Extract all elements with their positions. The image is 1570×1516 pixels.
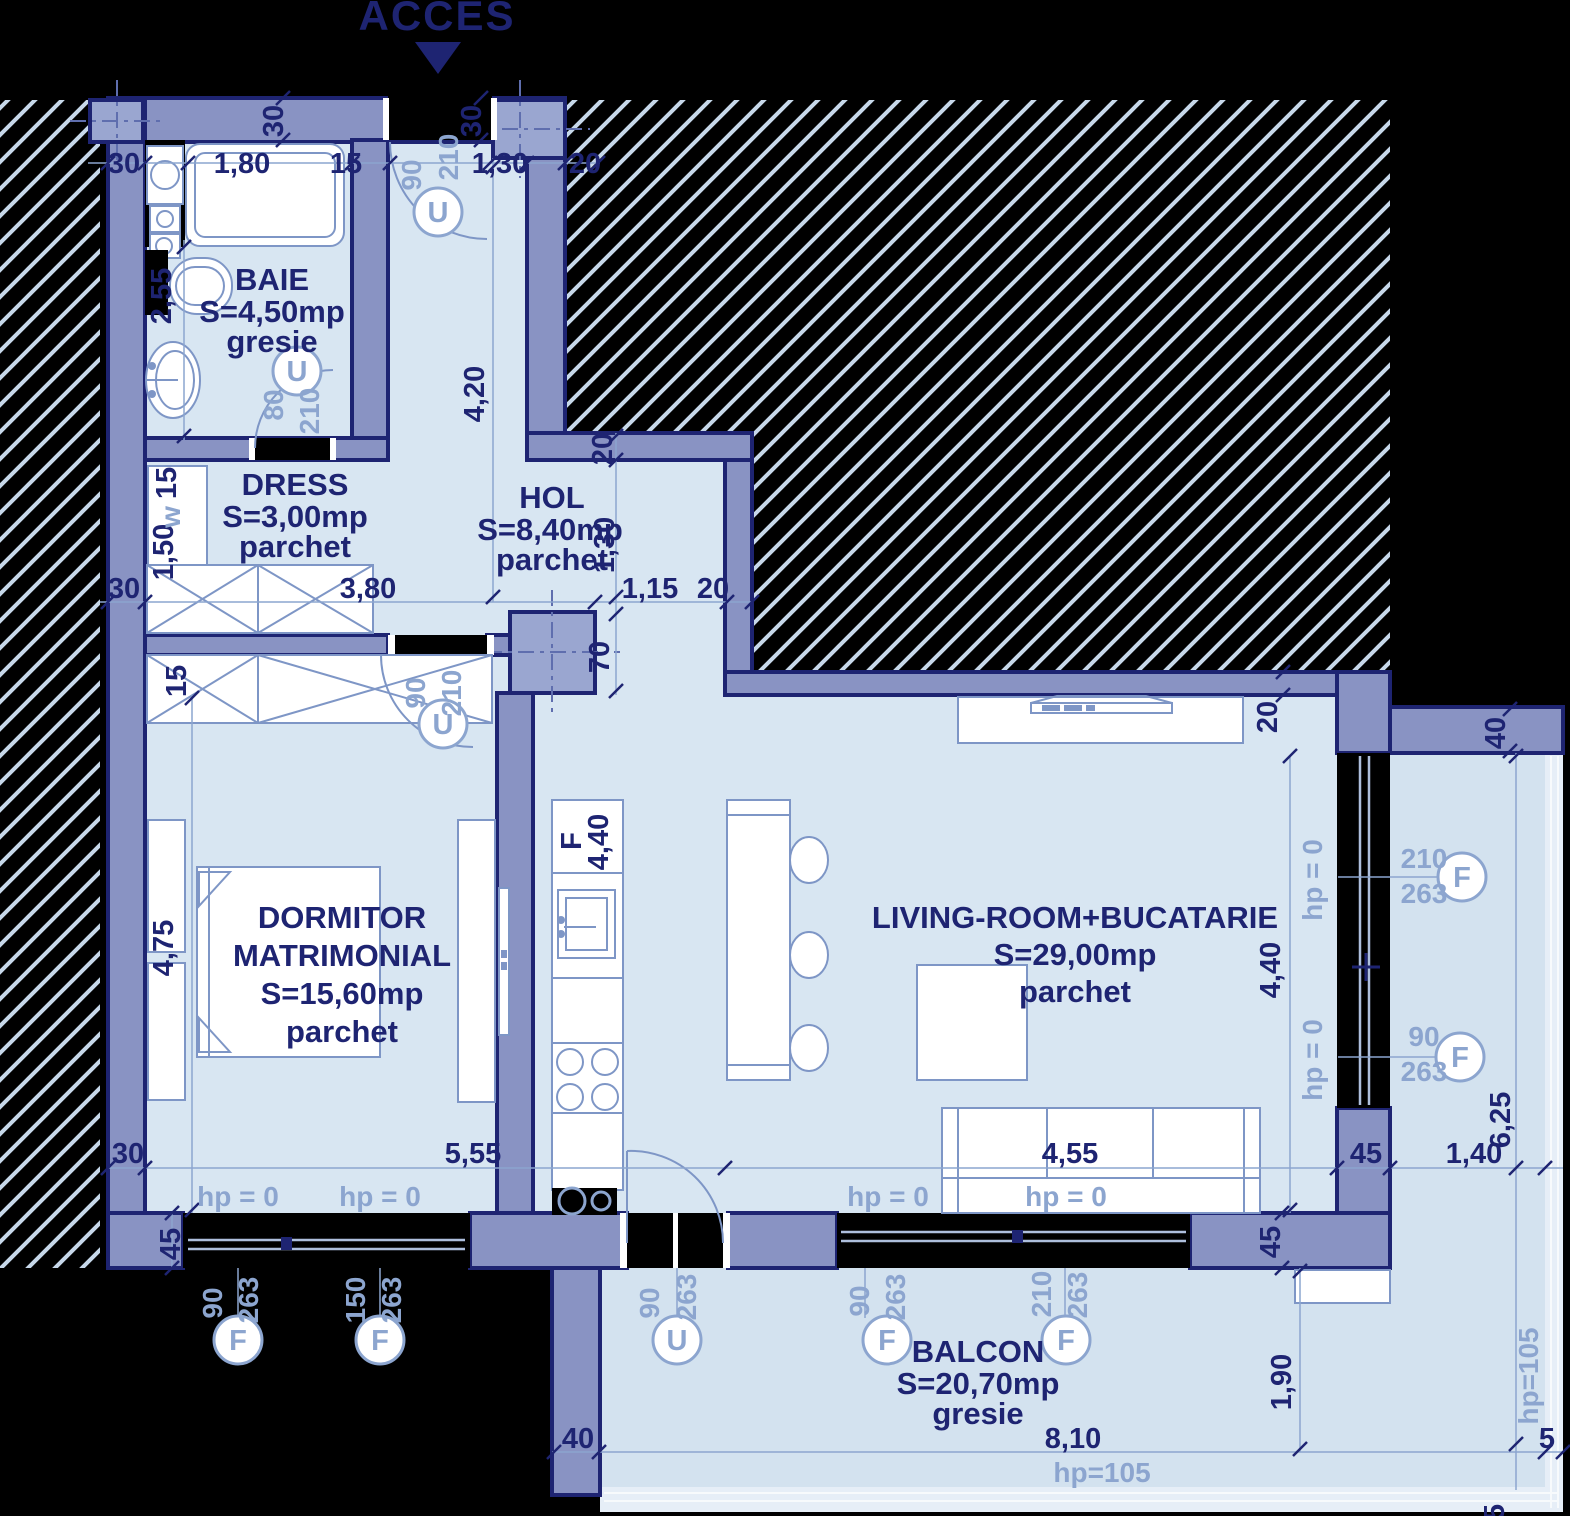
dim-label: 1,30 (472, 148, 528, 180)
parapet-label: hp = 0 (339, 1181, 421, 1212)
dim-label: 20 (569, 148, 601, 180)
door-size-label: 90 (400, 677, 431, 708)
window-size-label: 150 (340, 1277, 371, 1324)
door-size-label: 210 (433, 134, 464, 181)
door-size-label: 90 (396, 159, 427, 190)
door-size-label: 90 (634, 1287, 665, 1318)
wall-living-top (725, 672, 1337, 695)
dim-label: 1,90 (1266, 1354, 1298, 1410)
dim-label: 4,55 (1042, 1138, 1098, 1170)
dormitor-name-2: MATRIMONIAL (233, 938, 451, 973)
dim-label: 30 (112, 1138, 144, 1170)
window-symbol-letter: F (1057, 1325, 1075, 1357)
dress-name: DRESS (242, 467, 349, 502)
living-area: S=29,00mp (994, 937, 1157, 972)
window-symbol-letter: F (878, 1325, 896, 1357)
window-size-label: 263 (1062, 1272, 1093, 1319)
dim-label: 1,30 (589, 517, 621, 573)
wall-dress-dorm (145, 635, 388, 655)
dim-label: 1,15 (622, 573, 678, 605)
window-symbol-letter: F (1451, 1042, 1469, 1074)
washer-label: w (155, 506, 186, 529)
window-size-label: 263 (376, 1277, 407, 1324)
parapet-label: hp=105 (1513, 1327, 1544, 1424)
window-symbol-letter: F (229, 1325, 247, 1357)
window-size-label: 263 (880, 1274, 911, 1321)
baie-floor: gresie (226, 324, 317, 359)
dim-label: 40 (562, 1423, 594, 1455)
wall-bottom-pier-1 (470, 1213, 627, 1268)
opening-dorm-door (395, 635, 487, 655)
window-size-label: 90 (1408, 1021, 1439, 1052)
living-floor: parchet (1019, 974, 1131, 1009)
stool (790, 837, 828, 883)
wall-balcony-left (552, 1268, 600, 1495)
window-size-label: 263 (1401, 878, 1448, 909)
dim-label: 15 (330, 148, 362, 180)
access-title: ACCES (358, 0, 515, 39)
wall-bottom-pier-2 (728, 1213, 837, 1268)
dim-label: 8,10 (1045, 1423, 1101, 1455)
wall-step-horizontal (527, 433, 752, 460)
window-living-right (1337, 753, 1390, 1108)
stool (790, 932, 828, 978)
dim-label: 3,80 (340, 573, 396, 605)
dim-label: 5,55 (445, 1138, 501, 1170)
dim-label: 30 (456, 105, 488, 137)
stool (790, 1025, 828, 1071)
window-size-label: 90 (197, 1287, 228, 1318)
tv (499, 888, 509, 1035)
balcony-unit (1295, 1270, 1390, 1303)
wall-balcony-top (1390, 707, 1563, 753)
dim-label: 4,75 (148, 920, 180, 976)
dorm-wardrobe (458, 820, 495, 1102)
parapet-label: hp = 0 (197, 1181, 279, 1212)
dormitor-area: S=15,60mp (261, 976, 424, 1011)
wall-left (108, 98, 145, 1268)
parapet-label: hp = 0 (1297, 1019, 1328, 1101)
living-window-symbol-1: F (863, 1316, 911, 1364)
dim-label: 30 (108, 148, 140, 180)
dormitor-name-1: DORMITOR (258, 900, 426, 935)
dim-label: 30 (258, 105, 290, 137)
living-window-symbol-2: F (1042, 1316, 1090, 1364)
door-size-label: 263 (671, 1274, 702, 1321)
parapet-label: hp=105 (1053, 1457, 1150, 1488)
hatch-left-strip (0, 100, 100, 1268)
window-size-label: 210 (1026, 1271, 1057, 1318)
dim-label: 20 (1252, 701, 1284, 733)
parapet-label: hp = 0 (1297, 839, 1328, 921)
wall-baie-right (352, 140, 388, 460)
dim-label: 1,50 (148, 524, 180, 580)
island (727, 800, 790, 1080)
door-symbol-letter: U (287, 356, 308, 388)
dim-label: 4,40 (583, 814, 615, 870)
dim-label: 15 (151, 467, 183, 499)
balcony-door-symbol: U (653, 1316, 701, 1364)
dim-label: 2,55 (146, 268, 178, 324)
table (917, 965, 1027, 1080)
balcon-floor: gresie (932, 1396, 1023, 1431)
dim-label: 45 (1350, 1138, 1382, 1170)
window-symbol-letter: F (371, 1325, 389, 1357)
dim-label: 30 (108, 573, 140, 605)
window-size-label: 263 (233, 1277, 264, 1324)
dim-label: 4,40 (1255, 942, 1287, 998)
dormitor-floor: parchet (286, 1014, 398, 1049)
dress-floor: parchet (239, 529, 351, 564)
door-symbol-letter: U (428, 197, 449, 229)
hol-name: HOL (519, 480, 584, 515)
door-symbol-letter: U (667, 1325, 688, 1357)
dim-label: 45 (155, 1228, 187, 1260)
balcon-name: BALCON (912, 1334, 1045, 1369)
parapet-label: hp = 0 (1025, 1181, 1107, 1212)
nightstand (148, 963, 185, 1100)
dim-label: 6,25 (1485, 1092, 1517, 1148)
dim-label: 5 (1479, 1504, 1511, 1516)
wall-bottom-right (1190, 1213, 1390, 1268)
wall-corner-jog (1337, 672, 1390, 753)
baie-name: BAIE (235, 262, 309, 297)
dim-label: 15 (161, 665, 193, 697)
dim-label: 70 (584, 641, 616, 673)
floor-plan-page: U U U U F F F F F F ACCES BAIE S=4,50mp … (0, 0, 1570, 1516)
dim-label: 5 (1539, 1423, 1555, 1455)
window-symbol-letter: F (1453, 862, 1471, 894)
window-size-label: 90 (844, 1285, 875, 1316)
dim-label: 1,80 (214, 148, 270, 180)
dim-label: 45 (1255, 1226, 1287, 1258)
entrance-door-symbol: U (414, 188, 462, 236)
opening-baie-door (255, 438, 330, 460)
door-size-label: 210 (294, 388, 325, 435)
window-size-label: 263 (1401, 1056, 1448, 1087)
parapet-label: hp = 0 (847, 1181, 929, 1212)
window-size-label: 210 (1401, 843, 1448, 874)
dim-label: 40 (1480, 717, 1512, 749)
door-size-label: 210 (436, 670, 467, 717)
door-size-label: 80 (258, 389, 289, 420)
dim-label: 20 (697, 573, 729, 605)
floor-plan-drawing: U U U U F F F F F F ACCES BAIE S=4,50mp … (0, 0, 1570, 1516)
dim-label: 4,20 (459, 366, 491, 422)
dim-label: 20 (587, 433, 619, 465)
living-name: LIVING-ROOM+BUCATARIE (872, 900, 1278, 935)
